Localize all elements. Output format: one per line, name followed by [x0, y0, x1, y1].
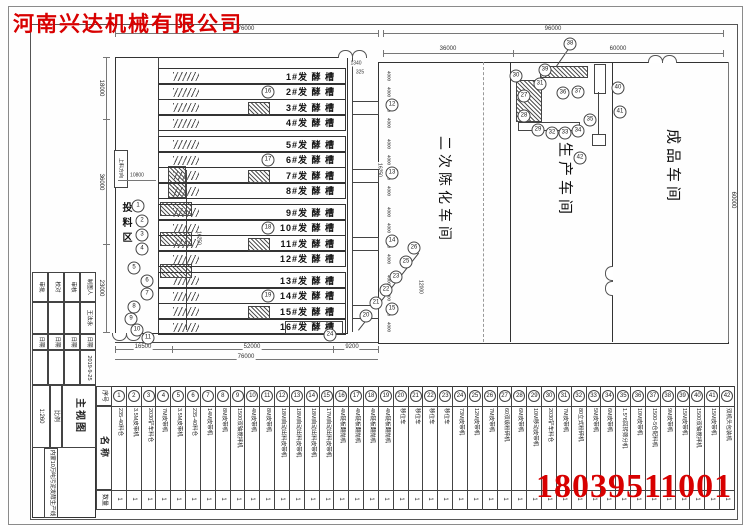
equipment-marker: 2 — [136, 215, 149, 228]
title-cell — [64, 350, 80, 385]
equipment-no: 13 — [291, 390, 303, 402]
turner-track-hatch — [173, 140, 199, 149]
tank-row: 10#发 酵 槽 — [158, 220, 346, 236]
dim-bottom-3: 9200 — [344, 344, 359, 350]
dim-row-4000: 4000 — [386, 184, 391, 196]
equipment-qty: 1 — [249, 497, 255, 500]
equipment-qty: 1 — [264, 497, 270, 500]
equipment-marker: 21 — [370, 297, 383, 310]
tank-label: 6#发 酵 槽 — [286, 153, 335, 166]
dim-row-4000: 4000 — [386, 221, 391, 233]
tank-hall-double-wall — [352, 57, 353, 332]
equipment-name: 7M皮带机 — [487, 408, 493, 488]
equipment-name: 17M自动出料皮带机 — [324, 408, 330, 488]
equipment-no: 40 — [691, 390, 703, 402]
equipment-column: 286M皮带机1 — [513, 386, 528, 510]
door-arc — [662, 55, 677, 63]
dim-row-4000: 4000 — [386, 153, 391, 165]
equipment-column: 184M链板翻抛机1 — [364, 386, 379, 510]
equipment-column: 174M链板翻抛机1 — [349, 386, 364, 510]
feed-area-label: 投料区 — [118, 202, 133, 247]
tank-row: 4#发 酵 槽 — [158, 115, 346, 131]
equipment-marker: 1 — [132, 200, 145, 213]
equipment-marker: 36 — [557, 87, 570, 100]
equipment-column: 21移位车1 — [409, 386, 424, 510]
workshop-label-aging: 二次陈化车间 — [438, 136, 452, 244]
tank-row: 8#发 酵 槽 — [158, 183, 346, 199]
equipment-qty: 1 — [502, 497, 508, 500]
equipment-no: 21 — [410, 390, 422, 402]
title-text: 日期 — [53, 336, 59, 347]
tank-row: 9#发 酵 槽 — [158, 204, 346, 220]
equipment-qty: 1 — [131, 497, 137, 500]
equipment-marker: 39 — [539, 64, 552, 77]
equipment-qty: 1 — [472, 497, 478, 500]
title-cell — [48, 350, 64, 385]
equipment-name: 6M皮带机 — [517, 408, 523, 488]
turner-machine — [248, 170, 270, 183]
packing-line — [598, 92, 599, 136]
equipment-name: 4M链板翻抛机 — [339, 408, 345, 488]
equipment-marker: 42 — [574, 152, 587, 165]
company-name-stamp: 河南兴达机械有限公司 — [13, 8, 243, 38]
equipment-name: 8M皮带机 — [264, 408, 270, 488]
equipment-qty: 1 — [205, 497, 211, 500]
equipment-name: 18M自动出料皮带机 — [294, 408, 300, 488]
equipment-qty: 1 — [442, 497, 448, 500]
equipment-column: 118M皮带机1 — [260, 386, 275, 510]
title-cell — [32, 302, 48, 334]
dim-line — [118, 180, 156, 181]
turner-machine — [248, 306, 270, 319]
equipment-name: 移位车 — [413, 408, 419, 488]
door-arc — [338, 50, 353, 58]
title-text: 日期 — [69, 336, 75, 347]
tank-label: 13#发 酵 槽 — [280, 274, 335, 287]
tank-label: 9#发 酵 槽 — [286, 206, 335, 219]
equipment-qty: 1 — [220, 497, 226, 500]
header-qty: 数量 — [101, 494, 107, 506]
equipment-marker: 37 — [572, 86, 585, 99]
equipment-name: 1500双轴搅拌机 — [235, 408, 241, 488]
dim-bottom-total: 76000 — [237, 354, 256, 360]
equipment-no: 8 — [217, 390, 229, 402]
equipment-qty: 1 — [146, 497, 152, 500]
equipment-marker: 4 — [136, 243, 149, 256]
tank-row: 6#发 酵 槽 — [158, 152, 346, 168]
turner-track-hatch — [173, 276, 199, 285]
equipment-marker: 6 — [141, 275, 154, 288]
turner-track-hatch — [173, 239, 199, 248]
equipment-no: 27 — [499, 390, 511, 402]
equipment-name: 4M链板翻抛机 — [368, 408, 374, 488]
tank-label: 5#发 酵 槽 — [286, 138, 335, 151]
equipment-marker: 38 — [564, 38, 577, 51]
door-arc — [605, 281, 613, 296]
dim-bottom-2: 52000 — [243, 344, 262, 350]
dim-line — [728, 62, 729, 342]
equipment-qty: 1 — [190, 497, 196, 500]
equipment-name: 60双级粉碎机 — [502, 408, 508, 488]
door-arc — [352, 50, 367, 58]
equipment-qty: 1 — [160, 497, 166, 500]
equipment-no: 2 — [128, 390, 140, 402]
dim-right-width: 60000 — [609, 46, 628, 52]
equipment-qty: 1 — [116, 497, 122, 500]
equipment-name: 18M自动出料皮带机 — [279, 408, 285, 488]
workshop-label-finished: 成品车间 — [666, 129, 681, 205]
packing-head — [592, 134, 606, 146]
view-name: 主视图 — [74, 398, 84, 434]
equipment-name: 18M自动出料皮带机 — [309, 408, 315, 488]
equipment-no: 3 — [143, 390, 155, 402]
turner-track-hatch — [173, 307, 199, 316]
tank-row: 1#发 酵 槽 — [158, 68, 346, 84]
equipment-no: 12 — [276, 390, 288, 402]
turner-machine — [248, 102, 270, 115]
equipment-no: 1 — [113, 390, 125, 402]
door-arc — [648, 55, 663, 63]
tank-row: 2#发 酵 槽 — [158, 84, 346, 100]
equipment-marker: 16 — [262, 86, 275, 99]
equipment-no: 37 — [647, 390, 659, 402]
title-text: 审批 — [37, 281, 43, 292]
equipment-marker: 26 — [408, 242, 421, 255]
equipment-marker: 23 — [390, 271, 403, 284]
dim-row-4000: 4000 — [386, 70, 391, 82]
dim-bottom-1: 16500 — [134, 344, 153, 350]
turner-machine — [248, 238, 270, 251]
equipment-name: 7M皮带机 — [161, 408, 167, 488]
equipment-no: 19 — [380, 390, 392, 402]
equipment-no: 32 — [573, 390, 585, 402]
equipment-no: 25 — [469, 390, 481, 402]
equipment-qty: 1 — [427, 497, 433, 500]
equipment-no: 26 — [484, 390, 496, 402]
tank-row: 12#发 酵 槽 — [158, 251, 346, 267]
equipment-marker: 29 — [532, 124, 545, 137]
title-cell — [64, 302, 80, 334]
equipment-name: 12M皮带机 — [472, 408, 478, 488]
equipment-qty: 1 — [175, 497, 181, 500]
equipment-marker: 7 — [141, 288, 154, 301]
dim-row-4000: 4000 — [386, 206, 391, 218]
equipment-column: 194M链板翻抛机1 — [379, 386, 394, 510]
equipment-qty: 1 — [279, 497, 285, 500]
header-name: 名称 — [100, 436, 109, 460]
door-arc — [605, 266, 613, 281]
title-text: 日期 — [85, 336, 91, 347]
drawing-sheet: 河南兴达机械有限公司 18039511001 二次陈化车间 生产车间 成品车间 … — [0, 0, 750, 530]
equipment-column: 164M链板翻抛机1 — [335, 386, 350, 510]
tank-row: 16#发 酵 槽 — [158, 319, 346, 335]
equipment-column: 53.5M皮带机1 — [171, 386, 186, 510]
equipment-column: 2473M皮带机1 — [453, 386, 468, 510]
equipment-marker: 40 — [612, 82, 625, 95]
phone-number-stamp: 18039511001 — [536, 468, 732, 506]
equipment-no: 14 — [306, 390, 318, 402]
equipment-column: 1418M自动出料皮带机1 — [305, 386, 320, 510]
turner-track-hatch — [173, 119, 199, 128]
equipment-name: 4M皮带机 — [250, 408, 256, 488]
equipment-no: 33 — [588, 390, 600, 402]
equipment-name: 2030铲车料仓 — [146, 408, 152, 488]
tank-label: 8#发 酵 槽 — [286, 184, 335, 197]
equipment-no: 38 — [662, 390, 674, 402]
tank-label: 1#发 酵 槽 — [286, 70, 335, 83]
equipment-marker: 11 — [142, 332, 155, 345]
equipment-marker: 24 — [324, 329, 337, 342]
equipment-marker: 19 — [262, 290, 275, 303]
dim-line — [106, 57, 107, 332]
turner-track-hatch — [173, 103, 199, 112]
equipment-qty: 1 — [235, 497, 241, 500]
turner-track-hatch — [173, 208, 199, 217]
feed-direction-label: 上料方向 — [118, 158, 123, 178]
equipment-marker: 12 — [386, 99, 399, 112]
equipment-column: 23移位车1 — [438, 386, 453, 510]
equipment-column: 23.5M皮带机1 — [127, 386, 142, 510]
dim-row-4000: 4000 — [386, 138, 391, 150]
tank-row: 14#发 酵 槽 — [158, 288, 346, 304]
equipment-qty: 1 — [368, 497, 374, 500]
equipment-no: 11 — [261, 390, 273, 402]
equipment-no: 16 — [335, 390, 347, 402]
equipment-column: 22移位车1 — [424, 386, 439, 510]
tank-row: 13#发 酵 槽 — [158, 272, 346, 288]
scale-value: 1:260 — [38, 408, 44, 423]
equipment-no: 31 — [558, 390, 570, 402]
equipment-column: 32030铲车料仓1 — [142, 386, 157, 510]
tank-label: 15#发 酵 槽 — [280, 305, 335, 318]
equipment-name: 3.5M皮带机 — [175, 408, 181, 488]
scale-label: 比例 — [53, 410, 59, 422]
equipment-qty: 1 — [398, 497, 404, 500]
equipment-qty: 1 — [309, 497, 315, 500]
south-wall-line — [115, 342, 378, 343]
equipment-column: 1517M自动出料皮带机1 — [320, 386, 335, 510]
turner-track-hatch — [173, 88, 199, 97]
equipment-no: 22 — [424, 390, 436, 402]
equipment-qty: 1 — [487, 497, 493, 500]
equipment-name: 73M皮带机 — [457, 408, 463, 488]
turner-track-hatch — [173, 323, 199, 332]
equipment-column: 714M皮带机1 — [201, 386, 216, 510]
equipment-no: 18 — [365, 390, 377, 402]
equipment-name: 8M皮带机 — [220, 408, 226, 488]
equipment-marker: 22 — [380, 284, 393, 297]
tank-label: 3#发 酵 槽 — [286, 101, 335, 114]
equipment-no: 10 — [246, 390, 258, 402]
wall-production-finished — [612, 62, 613, 342]
dim-line — [383, 53, 723, 54]
equipment-name: 移位车 — [398, 408, 404, 488]
equipment-no: 42 — [721, 390, 733, 402]
equipment-column: 1318M自动出料皮带机1 — [290, 386, 305, 510]
workshop-label-production: 生产车间 — [558, 142, 573, 218]
dim-left-1: 18000 — [98, 79, 104, 98]
equipment-column: 88M皮带机1 — [216, 386, 231, 510]
equipment-column: 2512M皮带机1 — [468, 386, 483, 510]
title-text: 2019-9-25 — [85, 355, 91, 380]
equipment-marker: 15 — [386, 303, 399, 316]
equipment-marker: 30 — [510, 70, 523, 83]
dim-aging-width: 36000 — [439, 46, 458, 52]
tank-label: 7#发 酵 槽 — [286, 169, 335, 182]
turner-track-hatch — [173, 72, 199, 81]
equipment-no: 34 — [602, 390, 614, 402]
dim-inner-10800: 10800 — [129, 174, 145, 179]
equipment-no: 39 — [677, 390, 689, 402]
dim-row-4000: 4000 — [386, 116, 391, 128]
equipment-no: 15 — [321, 390, 333, 402]
equipment-marker: 28 — [518, 110, 531, 123]
equipment-no: 4 — [157, 390, 169, 402]
equipment-name: 235-40料仓 — [190, 408, 196, 488]
turner-track-hatch — [173, 292, 199, 301]
equipment-name: 235-40料仓 — [116, 408, 122, 488]
equipment-marker: 14 — [386, 235, 399, 248]
equipment-qty: 1 — [294, 497, 300, 500]
equipment-no: 36 — [632, 390, 644, 402]
equipment-marker: 34 — [572, 125, 585, 138]
title-cell — [48, 302, 64, 334]
dim-row-4000: 4000 — [386, 85, 391, 97]
equipment-no: 6 — [187, 390, 199, 402]
dim-left-3: 23000 — [98, 279, 104, 298]
turner-track-hatch — [173, 224, 199, 233]
dim-left-2: 36000 — [98, 173, 104, 192]
equipment-marker: 35 — [584, 114, 597, 127]
equipment-name: 4M链板翻抛机 — [383, 408, 389, 488]
packing-machine — [594, 64, 606, 94]
turner-track-hatch — [173, 255, 199, 264]
equipment-marker: 25 — [400, 256, 413, 269]
discharge-extension — [352, 101, 379, 115]
equipment-column: 6235-40料仓1 — [186, 386, 201, 510]
tank-label: 11#发 酵 槽 — [280, 237, 335, 250]
equipment-marker: 13 — [386, 167, 399, 180]
equipment-marker: 33 — [559, 127, 572, 140]
title-text: 校对 — [53, 281, 59, 292]
title-text: 制图人 — [85, 279, 91, 296]
dim-right-depth: 60000 — [730, 191, 736, 210]
equipment-no: 9 — [232, 390, 244, 402]
tank-label: 10#发 酵 槽 — [280, 221, 335, 234]
equipment-qty: 1 — [338, 497, 344, 500]
equipment-name: 移位车 — [428, 408, 434, 488]
equipment-marker: 18 — [262, 222, 275, 235]
equipment-marker: 3 — [136, 229, 149, 242]
equipment-no: 30 — [543, 390, 555, 402]
equipment-column: 2760双级粉碎机1 — [498, 386, 513, 510]
equipment-qty: 1 — [413, 497, 419, 500]
equipment-qty: 1 — [457, 497, 463, 500]
equipment-marker: 31 — [534, 78, 547, 91]
equipment-qty: 1 — [516, 497, 522, 500]
equipment-no: 24 — [454, 390, 466, 402]
equipment-no: 5 — [172, 390, 184, 402]
equipment-marker: 17 — [262, 154, 275, 167]
dim-inner-1340: 1340 — [349, 62, 362, 67]
equipment-column: 1218M自动出料皮带机1 — [275, 386, 290, 510]
tank-label: 2#发 酵 槽 — [286, 85, 335, 98]
equipment-column: 104M皮带机1 — [246, 386, 261, 510]
equipment-column: 267M皮带机1 — [483, 386, 498, 510]
dim-line — [383, 33, 723, 34]
equipment-no: 20 — [395, 390, 407, 402]
title-text: 日期 — [37, 336, 43, 347]
title-cell — [32, 350, 48, 385]
discharge-extension — [352, 237, 379, 251]
turner-track-hatch — [173, 171, 199, 180]
dim-inner-325: 325 — [355, 71, 365, 76]
equipment-qty: 1 — [324, 497, 330, 500]
equipment-marker: 20 — [360, 310, 373, 323]
dim-row-4000: 4000 — [386, 252, 391, 264]
tank-label: 12#发 酵 槽 — [280, 252, 335, 265]
dim-inner-12000: 12000 — [418, 279, 423, 295]
tank-label: 4#发 酵 槽 — [286, 116, 335, 129]
equipment-marker: 41 — [614, 106, 627, 119]
equipment-qty: 1 — [353, 497, 359, 500]
equipment-name: 3.5M皮带机 — [131, 408, 137, 488]
equipment-marker: 5 — [128, 262, 141, 275]
discharge-extension — [352, 169, 379, 183]
equipment-name: 移位车 — [442, 408, 448, 488]
header-no: 序号 — [101, 390, 107, 402]
equipment-column: 1235-40料仓1 — [112, 386, 127, 510]
project-name: 内蒙10万吨污泥发酵生产线 — [48, 450, 54, 517]
equipment-marker: 27 — [518, 90, 531, 103]
title-text: 审核 — [69, 281, 75, 292]
equipment-no: 7 — [202, 390, 214, 402]
equipment-no: 28 — [513, 390, 525, 402]
dim-row-4000: 4000 — [386, 320, 391, 332]
equipment-column: 47M皮带机1 — [157, 386, 172, 510]
equipment-name: 14M皮带机 — [205, 408, 211, 488]
dim-top-right: 96000 — [544, 26, 563, 32]
equipment-no: 29 — [528, 390, 540, 402]
equipment-column: 91500双轴搅拌机1 — [231, 386, 246, 510]
equipment-name: 4M链板翻抛机 — [353, 408, 359, 488]
equipment-no: 17 — [350, 390, 362, 402]
equipment-no: 23 — [439, 390, 451, 402]
title-text: 王法永 — [85, 310, 91, 327]
equipment-no: 35 — [617, 390, 629, 402]
turner-track-hatch — [173, 156, 199, 165]
equipment-no: 41 — [706, 390, 718, 402]
tank-row: 5#发 酵 槽 — [158, 136, 346, 152]
equipment-column: 20移位车1 — [394, 386, 409, 510]
tank-label: 14#发 酵 槽 — [280, 289, 335, 302]
equipment-marker: 32 — [546, 127, 559, 140]
equipment-qty: 1 — [383, 497, 389, 500]
wall-aging-production — [510, 62, 511, 342]
column-axis-line — [483, 62, 484, 342]
turner-track-hatch — [173, 187, 199, 196]
